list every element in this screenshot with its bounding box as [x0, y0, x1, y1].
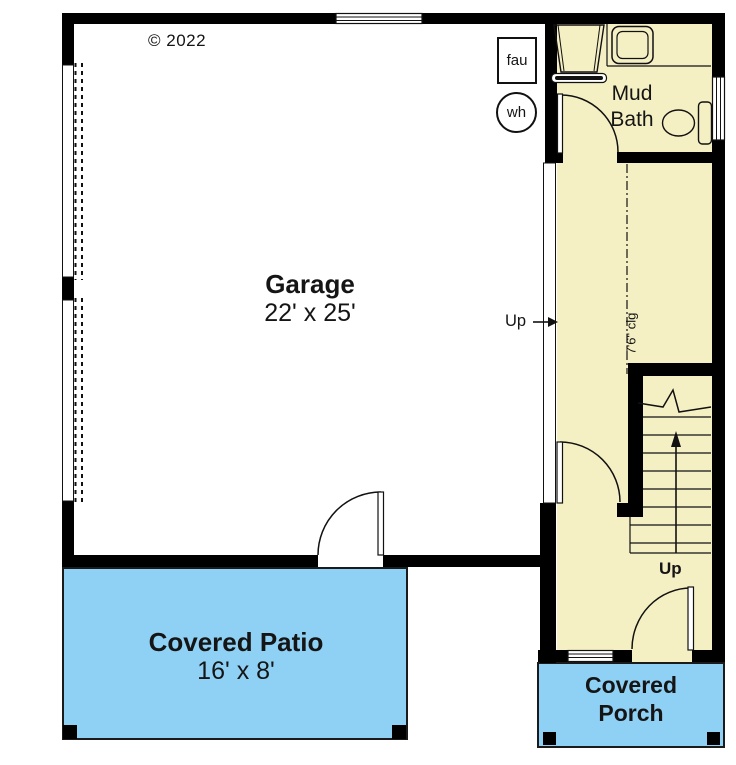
patio-post	[392, 725, 406, 739]
porch-post	[707, 732, 720, 745]
stairs	[630, 390, 711, 553]
garage-dims: 22' x 25'	[210, 299, 410, 328]
covered-patio-name: Covered Patio	[85, 627, 387, 657]
furnace-symbol: fau	[497, 37, 537, 84]
patio-post	[63, 725, 77, 739]
door-swing	[557, 442, 620, 503]
laundry-tub-icon	[552, 25, 607, 83]
garage-door-opening	[63, 298, 83, 504]
window	[713, 77, 725, 140]
water-heater-label: wh	[507, 104, 526, 121]
up-from-garage-label: Up	[505, 312, 526, 331]
door-swing	[632, 587, 694, 650]
mud-bath-name-line2: Bath	[582, 107, 682, 133]
window	[568, 651, 613, 662]
up-stairs-label: Up	[659, 559, 682, 579]
covered-porch-name-line2: Porch	[551, 699, 711, 727]
window	[336, 14, 422, 24]
mud-bath-label: Mud Bath	[582, 81, 682, 133]
sink-icon	[607, 24, 711, 66]
ceiling-height-note: 7'6" clg	[624, 302, 639, 366]
furnace-label: fau	[507, 52, 528, 69]
covered-patio-dims: 16' x 8'	[85, 657, 387, 686]
covered-patio-label: Covered Patio 16' x 8'	[85, 627, 387, 686]
garage-name: Garage	[210, 269, 410, 299]
stair-up-arrow-icon	[671, 431, 681, 553]
copyright-text: © 2022	[148, 31, 206, 51]
floor-plan: © 2022 Garage 22' x 25' Mud Bath fau wh …	[0, 0, 736, 765]
garage-door-opening	[63, 63, 83, 280]
garage-label: Garage 22' x 25'	[210, 269, 410, 328]
door-swing	[318, 492, 384, 555]
mud-bath-name-line1: Mud	[582, 81, 682, 107]
porch-post	[543, 732, 556, 745]
water-heater-symbol: wh	[496, 92, 537, 133]
covered-porch-label: Covered Porch	[551, 671, 711, 727]
covered-porch-name-line1: Covered	[551, 671, 711, 699]
partition-wall	[544, 163, 556, 503]
